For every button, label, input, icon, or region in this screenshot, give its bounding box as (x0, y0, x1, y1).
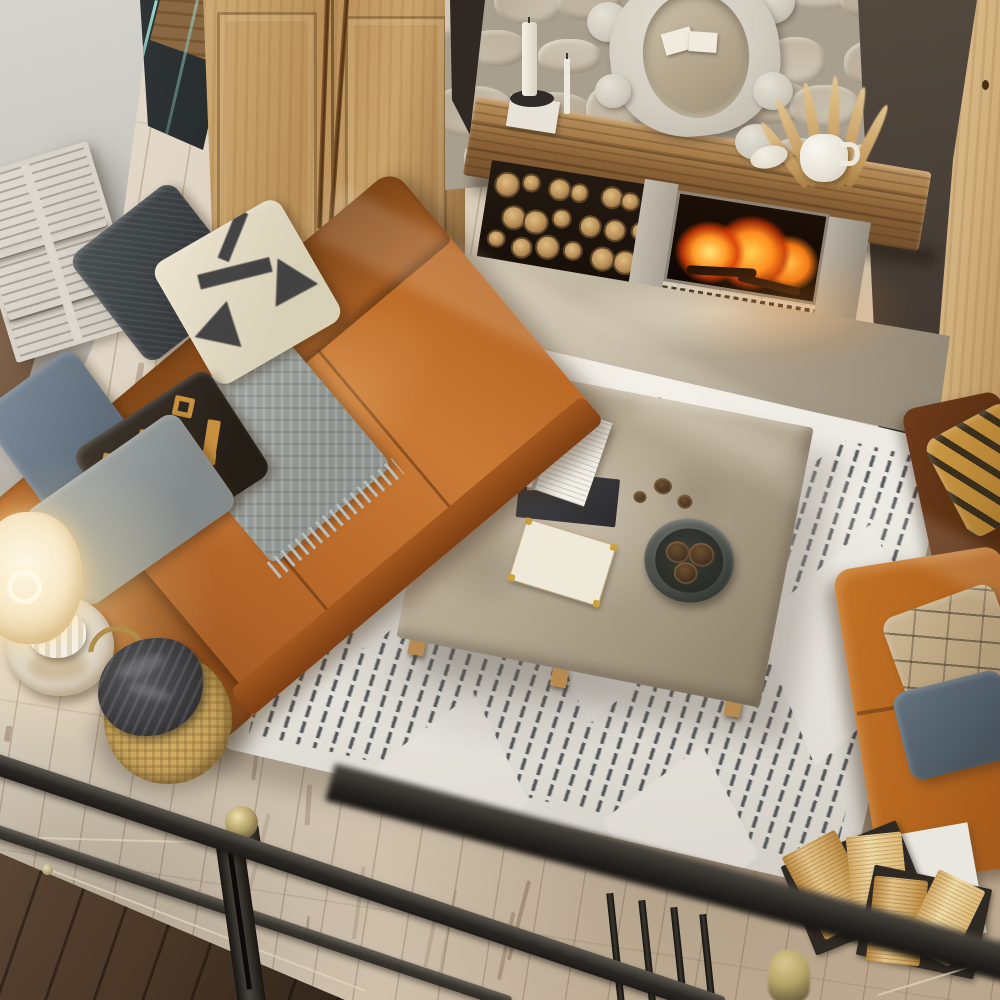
vignette (0, 0, 1000, 1000)
living-room-scene (0, 0, 1000, 1000)
